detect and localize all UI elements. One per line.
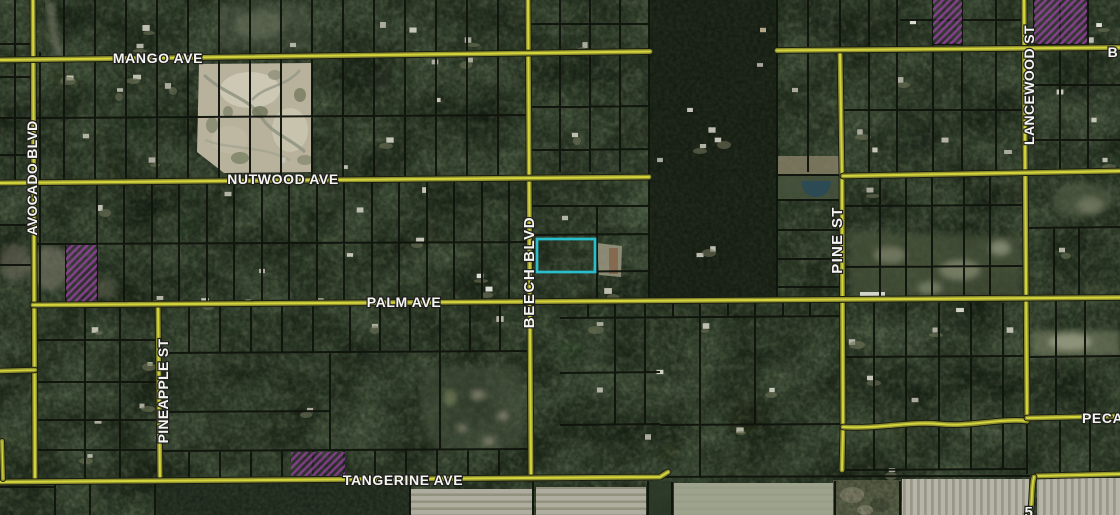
svg-text:PECAN: PECAN [1082, 410, 1120, 426]
svg-text:5: 5 [1025, 504, 1034, 515]
svg-text:PALM AVE: PALM AVE [367, 294, 442, 310]
svg-text:B: B [1108, 44, 1119, 60]
svg-text:LANCEWOOD ST: LANCEWOOD ST [1021, 25, 1037, 145]
svg-text:MANGO AVE: MANGO AVE [113, 50, 203, 66]
svg-text:PINE ST: PINE ST [829, 206, 846, 273]
svg-text:BEECH BLVD: BEECH BLVD [521, 216, 538, 328]
svg-text:TANGERINE AVE: TANGERINE AVE [343, 472, 463, 488]
svg-text:AVOCADO BLVD: AVOCADO BLVD [24, 120, 40, 235]
svg-text:NUTWOOD AVE: NUTWOOD AVE [227, 171, 339, 187]
svg-text:PINEAPPLE ST: PINEAPPLE ST [155, 338, 171, 443]
